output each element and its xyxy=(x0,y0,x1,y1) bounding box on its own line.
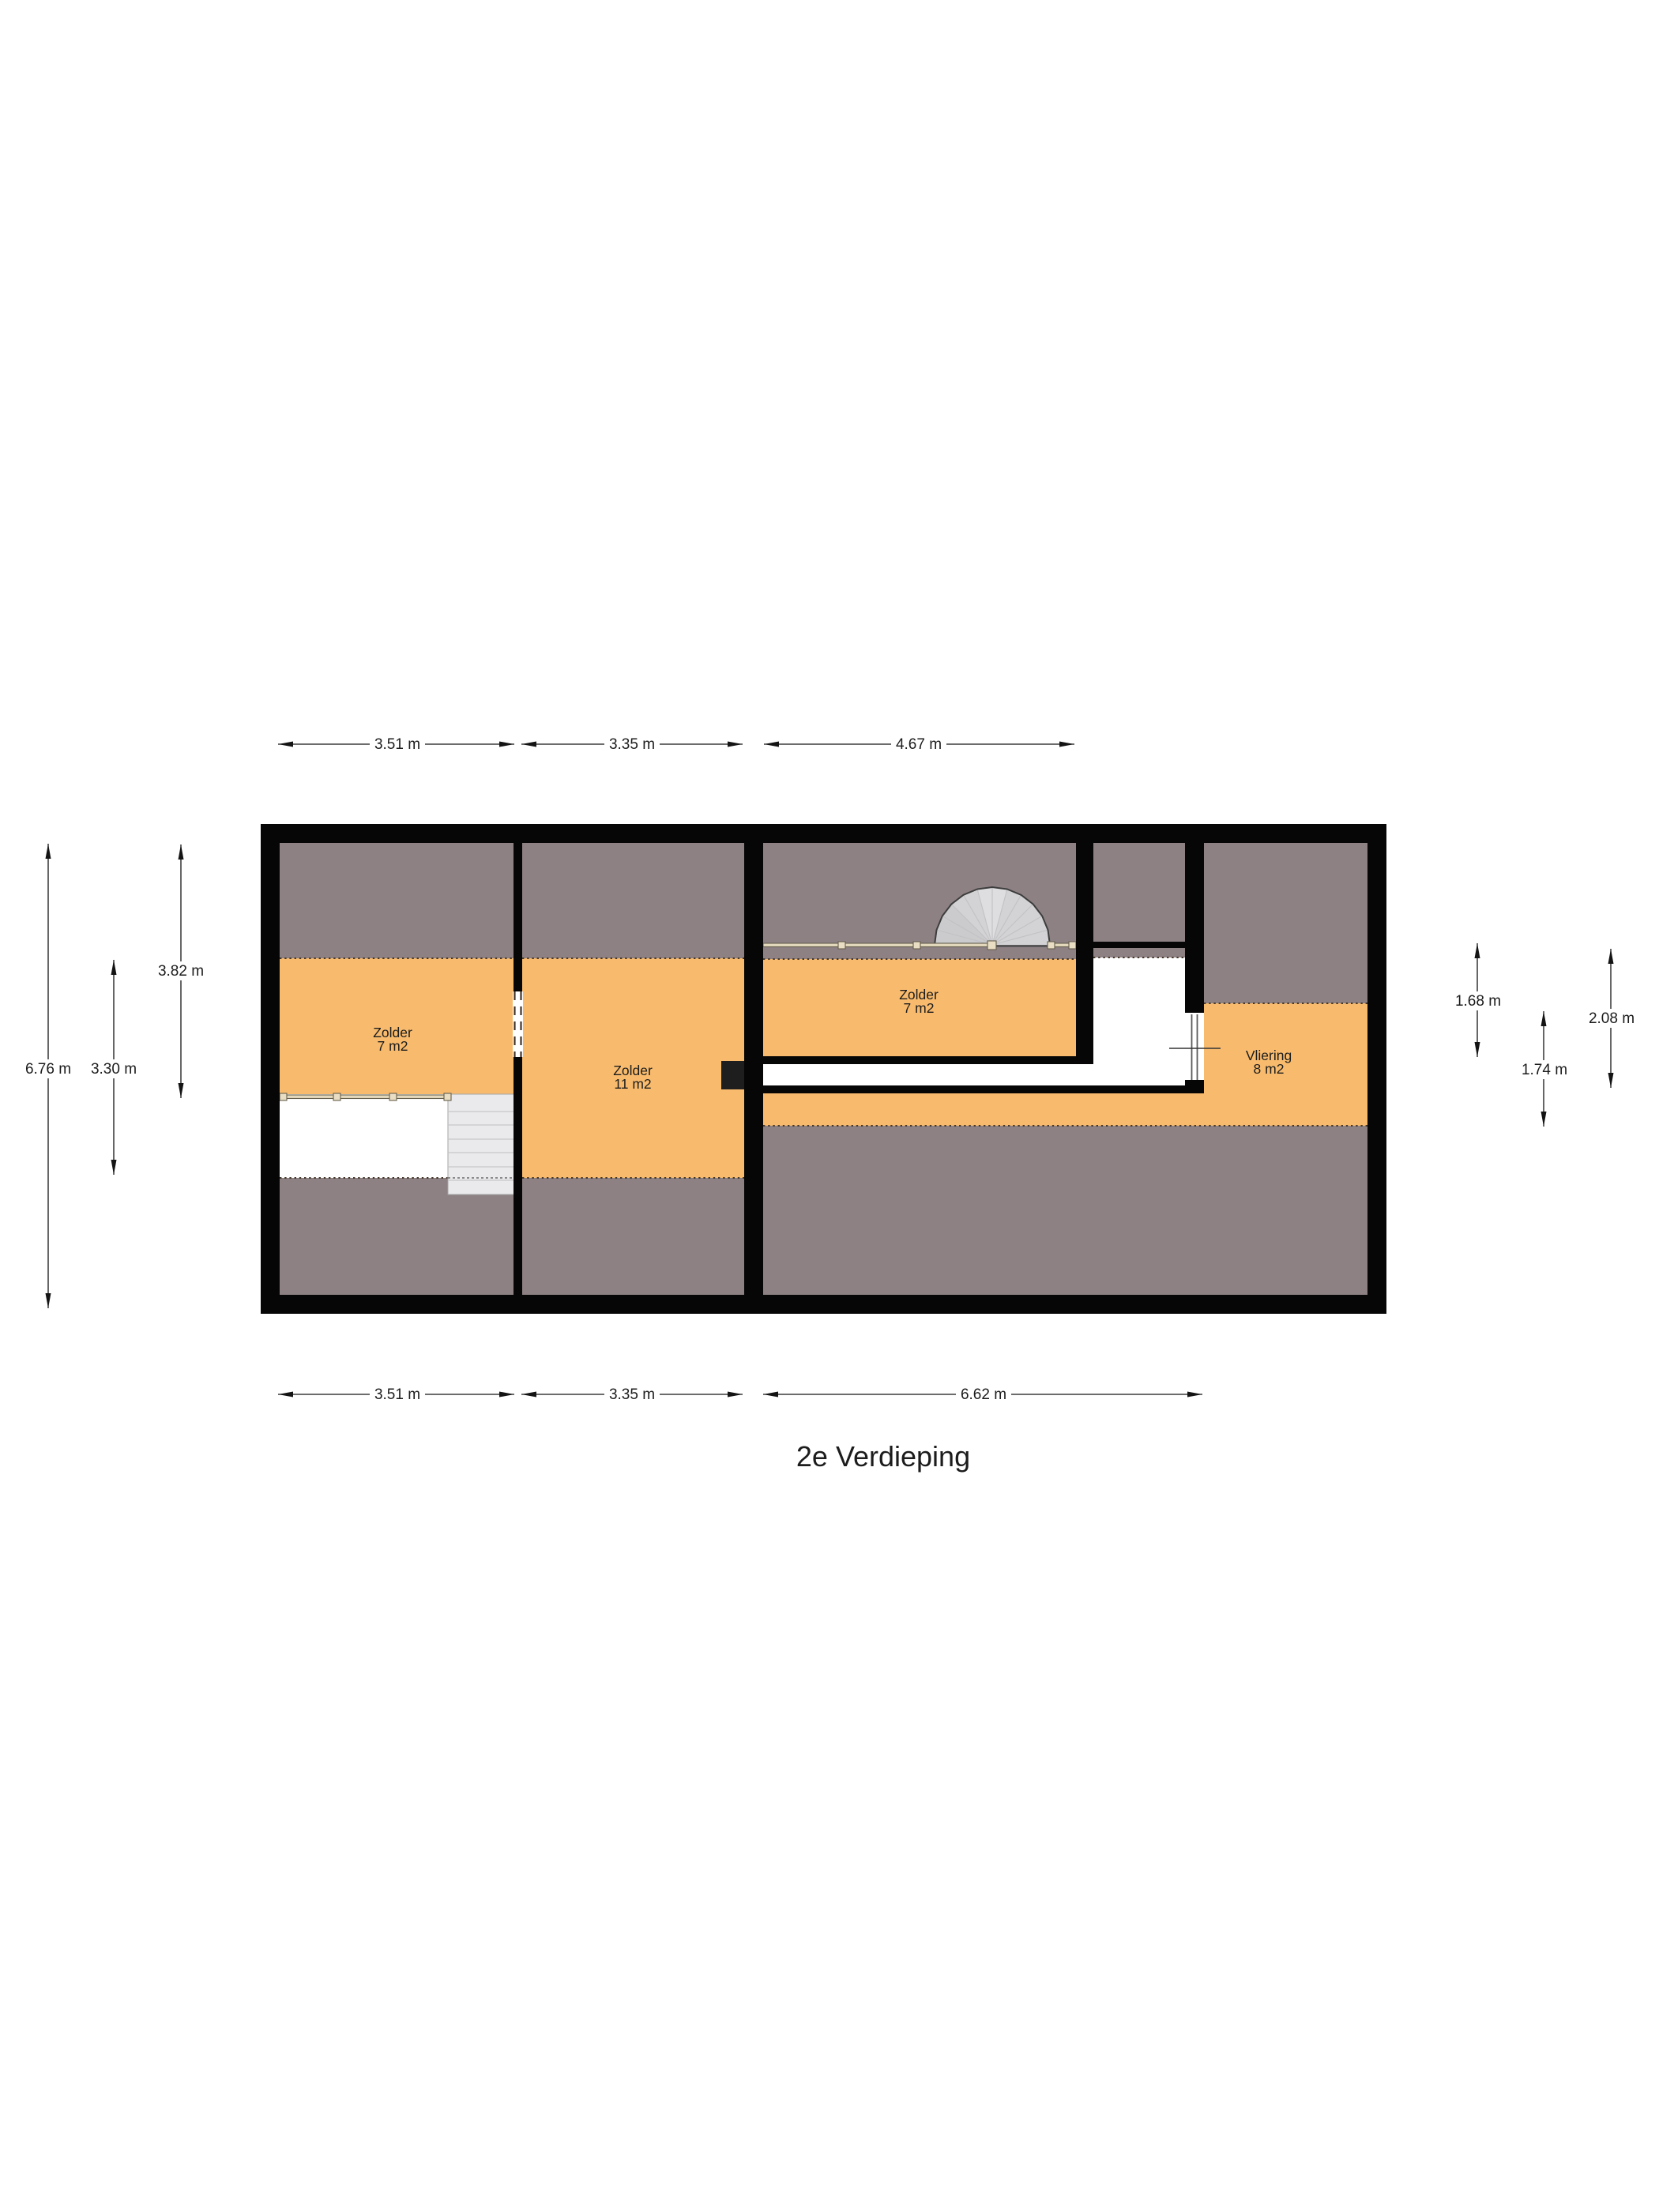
svg-text:6.76 m: 6.76 m xyxy=(25,1061,71,1078)
svg-text:3.51 m: 3.51 m xyxy=(374,1386,420,1403)
svg-text:8 m2: 8 m2 xyxy=(1254,1061,1285,1077)
svg-text:4.67 m: 4.67 m xyxy=(896,736,942,753)
svg-text:3.35 m: 3.35 m xyxy=(609,1386,655,1403)
svg-text:1.68 m: 1.68 m xyxy=(1455,993,1501,1010)
svg-text:6.62 m: 6.62 m xyxy=(961,1386,1006,1403)
svg-text:3.82 m: 3.82 m xyxy=(158,963,204,980)
svg-text:3.35 m: 3.35 m xyxy=(609,736,655,753)
svg-text:11 m2: 11 m2 xyxy=(614,1076,651,1092)
svg-text:1.74 m: 1.74 m xyxy=(1522,1062,1567,1078)
svg-text:7 m2: 7 m2 xyxy=(904,1000,935,1016)
svg-text:7 m2: 7 m2 xyxy=(378,1038,408,1054)
svg-text:3.51 m: 3.51 m xyxy=(374,736,420,753)
svg-text:3.30 m: 3.30 m xyxy=(91,1061,137,1078)
svg-text:2e Verdieping: 2e Verdieping xyxy=(796,1440,970,1473)
svg-text:2.08 m: 2.08 m xyxy=(1589,1010,1635,1027)
